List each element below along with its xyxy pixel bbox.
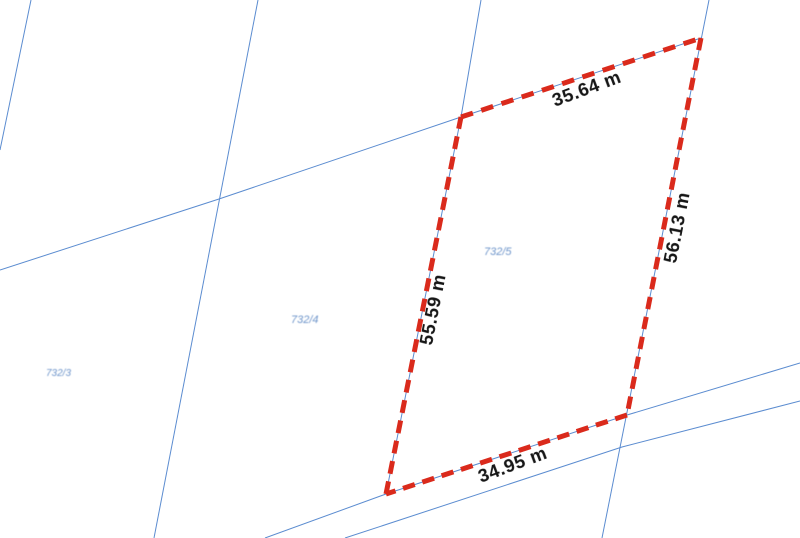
svg-text:732/4: 732/4 — [291, 314, 319, 326]
svg-text:732/3: 732/3 — [46, 368, 71, 379]
svg-text:732/5: 732/5 — [484, 246, 512, 258]
